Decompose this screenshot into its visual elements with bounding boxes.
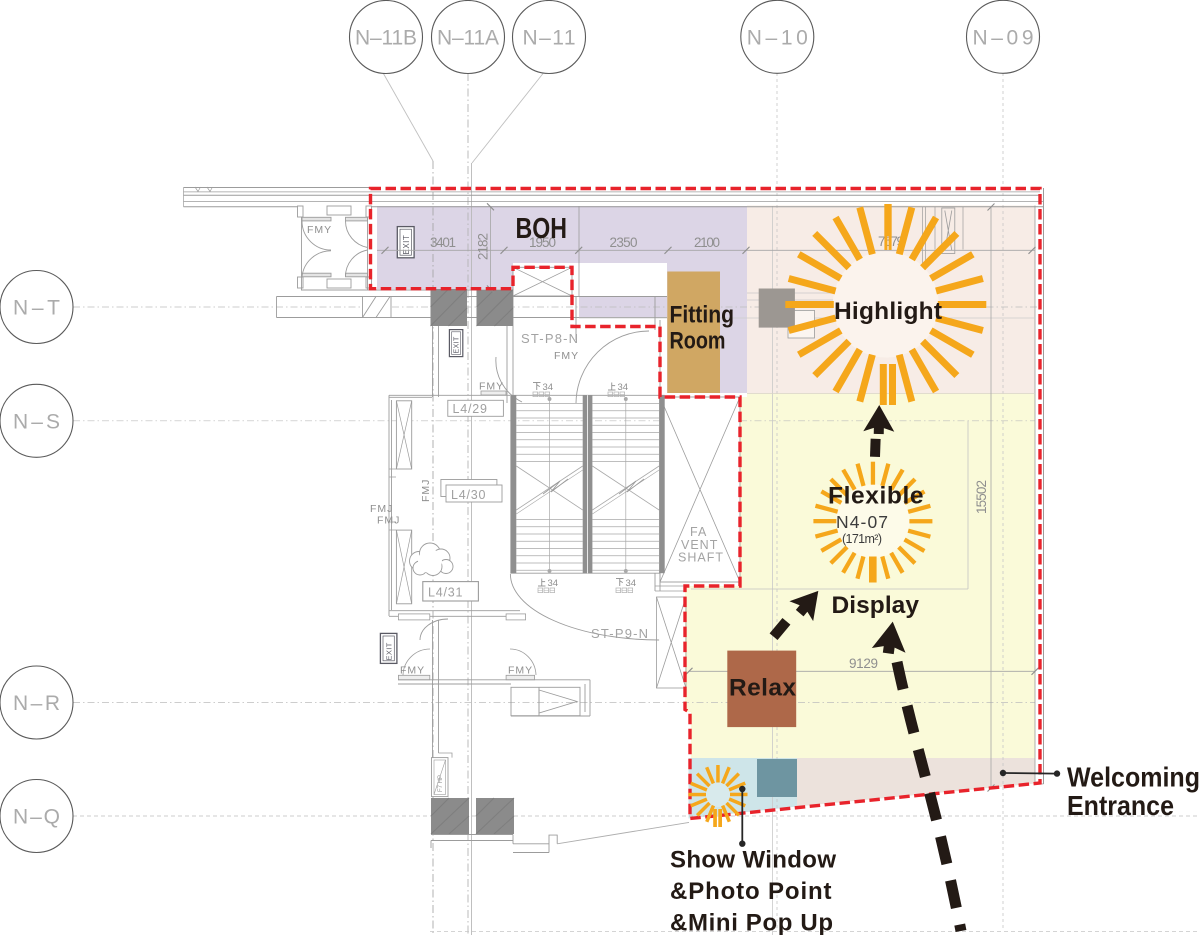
svg-text:9129: 9129 bbox=[849, 656, 878, 671]
svg-text:N–11B: N–11B bbox=[355, 27, 417, 50]
svg-text:L4/29: L4/29 bbox=[453, 402, 488, 416]
svg-text:Welcoming: Welcoming bbox=[1067, 762, 1200, 793]
svg-text:34: 34 bbox=[543, 382, 554, 393]
svg-text:ST-P8-N: ST-P8-N bbox=[521, 331, 579, 346]
svg-text:SHAFT: SHAFT bbox=[678, 551, 724, 565]
svg-text:&Mini Pop Up: &Mini Pop Up bbox=[670, 910, 833, 935]
svg-text:FMY: FMY bbox=[307, 224, 332, 236]
svg-text:Highlight: Highlight bbox=[834, 298, 942, 325]
svg-text:F7 HP: F7 HP bbox=[438, 775, 444, 792]
svg-text:EXIT: EXIT bbox=[454, 336, 461, 353]
svg-text:34: 34 bbox=[626, 578, 637, 589]
svg-text:2100: 2100 bbox=[694, 235, 720, 250]
svg-text:EXIT: EXIT bbox=[385, 642, 394, 660]
svg-text:N–R: N–R bbox=[13, 692, 60, 715]
svg-text:34: 34 bbox=[548, 578, 559, 589]
svg-text:Flexible: Flexible bbox=[828, 483, 924, 510]
svg-text:&Photo Point: &Photo Point bbox=[670, 878, 832, 905]
svg-text:EXIT: EXIT bbox=[402, 235, 411, 255]
svg-text:FMY: FMY bbox=[554, 350, 579, 362]
svg-text:15502: 15502 bbox=[974, 480, 989, 514]
svg-text:N–11: N–11 bbox=[523, 27, 576, 50]
svg-text:Room: Room bbox=[670, 328, 726, 355]
svg-text:Display: Display bbox=[832, 592, 920, 619]
svg-text:L4/30: L4/30 bbox=[451, 488, 486, 502]
svg-text:Relax: Relax bbox=[729, 675, 796, 702]
svg-text:FMY: FMY bbox=[479, 381, 504, 393]
svg-text:3401: 3401 bbox=[430, 235, 456, 250]
svg-text:N–S: N–S bbox=[13, 410, 60, 433]
svg-text:FMJ: FMJ bbox=[377, 515, 400, 527]
svg-text:FMJ: FMJ bbox=[370, 503, 393, 515]
svg-text:FMY: FMY bbox=[400, 665, 425, 677]
svg-text:Entrance: Entrance bbox=[1067, 790, 1174, 821]
svg-text:Fitting: Fitting bbox=[670, 302, 735, 329]
svg-text:34: 34 bbox=[618, 382, 629, 393]
svg-text:N4-07: N4-07 bbox=[836, 512, 888, 532]
svg-text:(171m²): (171m²) bbox=[842, 532, 882, 546]
svg-text:FMY: FMY bbox=[508, 665, 533, 677]
svg-text:N–T: N–T bbox=[13, 297, 60, 320]
svg-text:BOH: BOH bbox=[516, 213, 568, 245]
svg-text:2350: 2350 bbox=[610, 235, 638, 250]
svg-text:L4/31: L4/31 bbox=[428, 586, 463, 600]
svg-text:2182: 2182 bbox=[476, 233, 491, 260]
svg-text:ST-P9-N: ST-P9-N bbox=[591, 626, 649, 641]
svg-text:N–11A: N–11A bbox=[437, 27, 499, 50]
svg-text:N–Q: N–Q bbox=[13, 806, 60, 829]
svg-text:FA: FA bbox=[690, 525, 707, 539]
svg-text:FMJ: FMJ bbox=[420, 479, 432, 502]
svg-text:Show Window: Show Window bbox=[670, 847, 836, 874]
